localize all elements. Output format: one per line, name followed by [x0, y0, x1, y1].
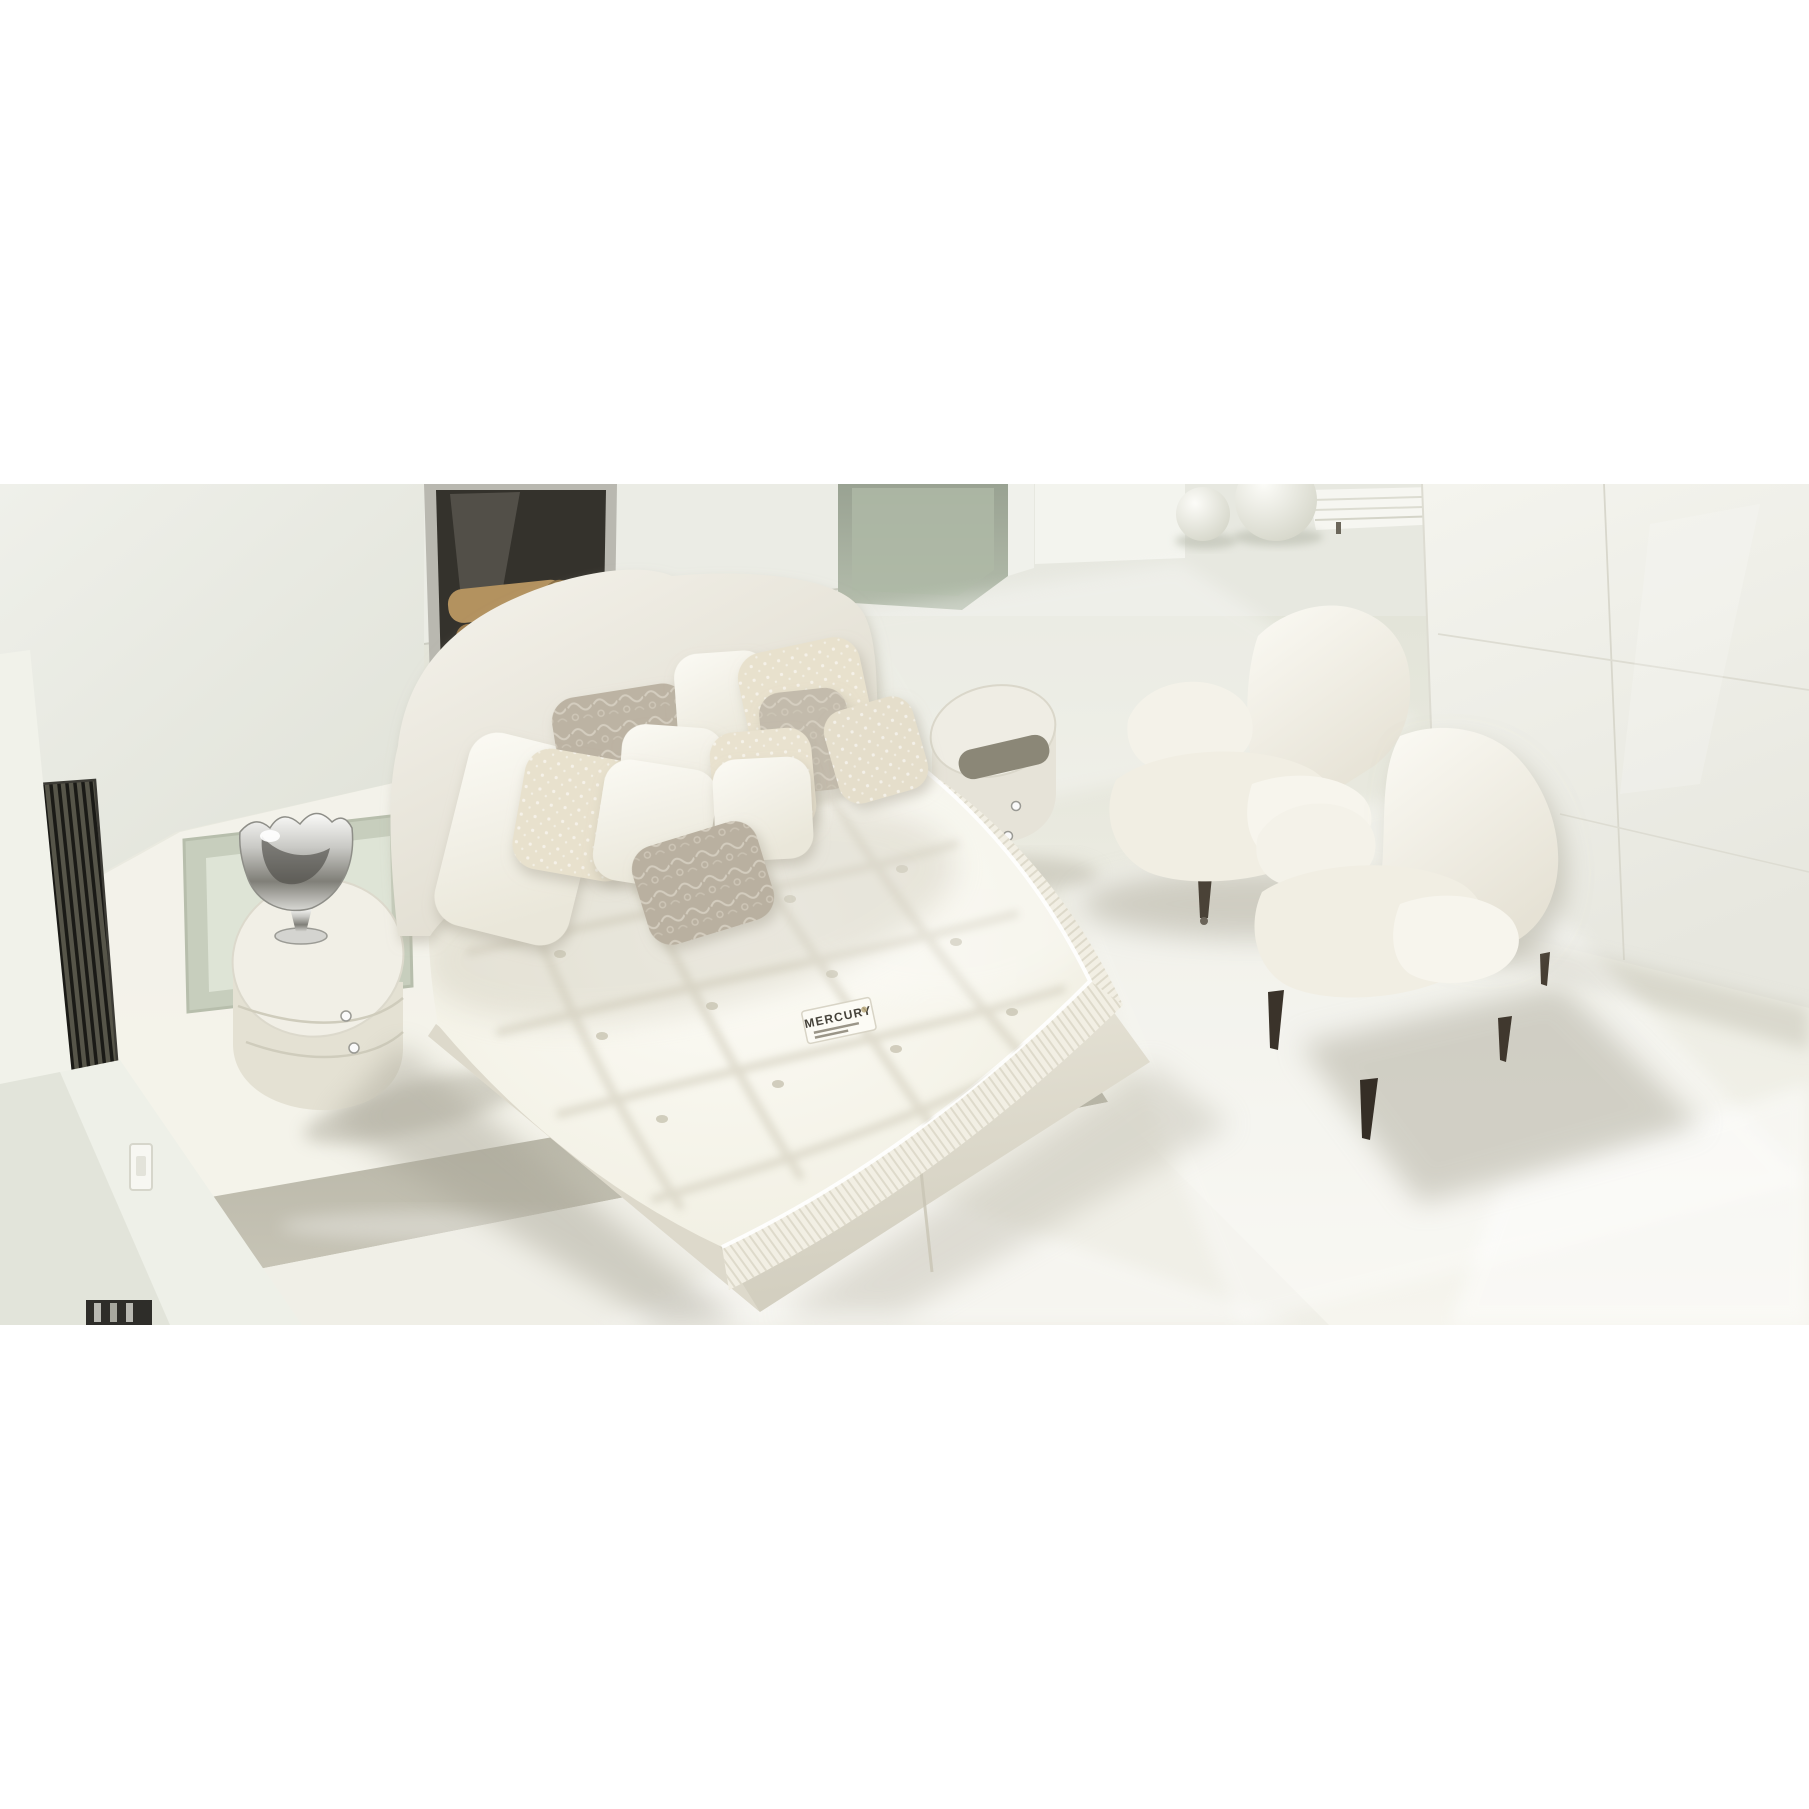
- crystal-knob: [341, 1011, 351, 1021]
- bench-leg: [1336, 522, 1341, 534]
- socket-pin: [110, 1303, 117, 1322]
- crystal-knob: [1012, 802, 1021, 811]
- bowl-specular: [260, 830, 280, 842]
- floor-socket: [86, 1300, 152, 1325]
- socket-pin: [94, 1303, 101, 1322]
- stone-spheres: [1175, 484, 1323, 549]
- wall-block: [1035, 484, 1185, 564]
- crystal-knob: [349, 1043, 359, 1053]
- bedroom-photo: MERCURY: [0, 484, 1809, 1325]
- partition-jamb: [1008, 484, 1034, 576]
- stone-sphere-small: [1176, 487, 1230, 541]
- socket-pin: [126, 1303, 133, 1322]
- glass-inner: [852, 488, 994, 596]
- page-background: MERCURY: [0, 0, 1809, 1809]
- wall-switch-rocker: [136, 1156, 146, 1176]
- bedroom-scene: MERCURY: [0, 484, 1809, 1325]
- chair-caster: [1200, 917, 1208, 925]
